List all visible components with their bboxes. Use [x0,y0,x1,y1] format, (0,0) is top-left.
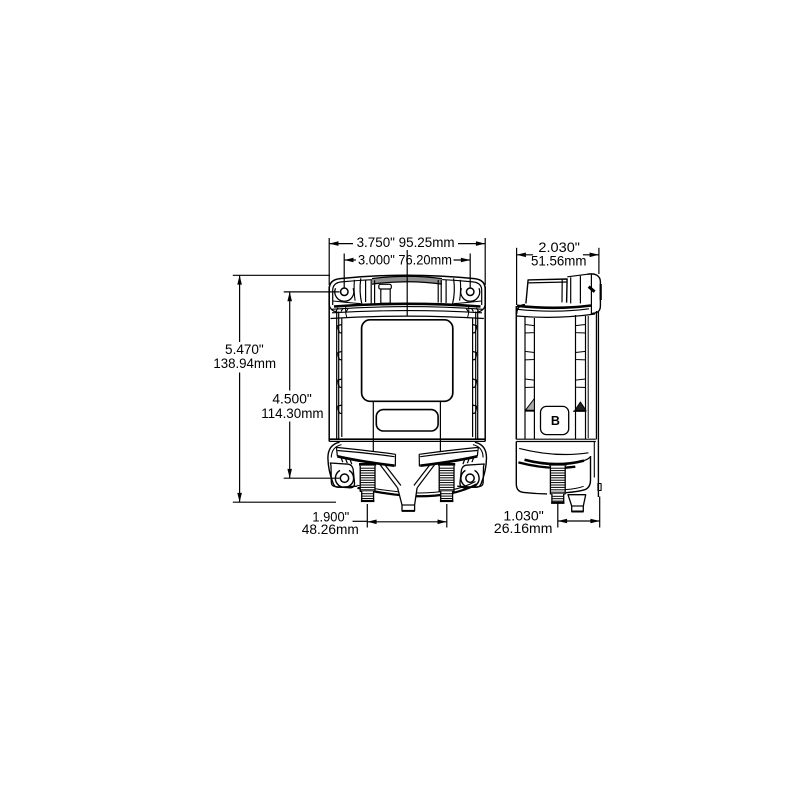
svg-text:3.000" 76.20mm: 3.000" 76.20mm [358,253,452,268]
svg-text:5.470": 5.470" [225,342,264,357]
svg-text:48.26mm: 48.26mm [302,522,359,537]
svg-text:114.30mm: 114.30mm [261,406,323,421]
svg-text:4.500": 4.500" [272,392,311,407]
svg-text:51.56mm: 51.56mm [531,254,587,269]
svg-text:26.16mm: 26.16mm [494,521,553,536]
svg-text:3.750" 95.25mm: 3.750" 95.25mm [357,235,455,250]
svg-text:138.94mm: 138.94mm [213,356,276,371]
svg-text:B: B [551,414,560,428]
